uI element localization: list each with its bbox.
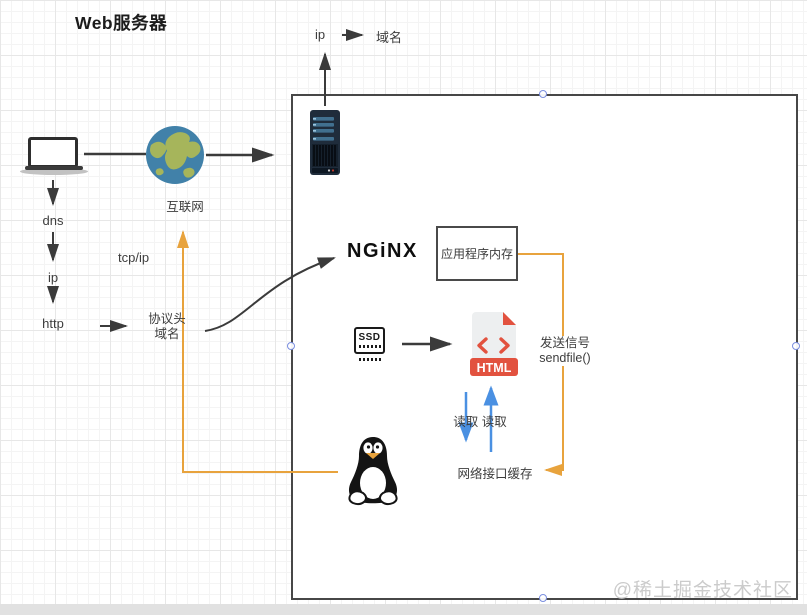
connection-handle-top[interactable] (539, 90, 547, 98)
connection-handle-left[interactable] (287, 342, 295, 350)
laptop-icon[interactable] (28, 137, 78, 168)
label-internet: 互联网 (150, 196, 220, 215)
app-memory-label: 应用程序内存 (441, 245, 513, 262)
connection-handle-bottom[interactable] (539, 594, 547, 602)
diagram-canvas: Web服务器 ip 域名 互联网 dns (0, 0, 807, 615)
ssd-icon[interactable]: SSD (354, 327, 385, 354)
label-dns: dns (33, 213, 73, 228)
laptop-hinge (25, 166, 83, 170)
label-ip-top: ip (315, 27, 325, 42)
page-title: Web服务器 (75, 10, 167, 35)
label-domain-top: 域名 (376, 27, 402, 46)
label-read: 读取 读取 (440, 411, 520, 430)
ssd-dots (359, 345, 381, 348)
watermark: @稀土掘金技术社区 (613, 575, 793, 602)
connection-handle-right[interactable] (792, 342, 800, 350)
bottom-edge-strip (0, 604, 807, 615)
tux-linux-icon[interactable] (343, 436, 403, 508)
label-tcpip: tcp/ip (118, 250, 149, 265)
label-ip: ip (33, 270, 73, 285)
label-protocol-header: 协议头域名 (136, 312, 198, 341)
nginx-logo[interactable]: NGiNX (347, 240, 418, 263)
server-icon[interactable] (310, 110, 340, 175)
html-banner-label: HTML (477, 361, 512, 375)
ssd-pins (359, 358, 383, 361)
label-send-signal: 发送信号sendfile() (523, 336, 607, 366)
app-memory-box[interactable]: 应用程序内存 (436, 226, 518, 281)
label-http: http (33, 316, 73, 331)
globe-icon[interactable] (145, 125, 205, 185)
ssd-label: SSD (358, 333, 380, 343)
label-nic-cache: 网络接口缓存 (453, 463, 537, 482)
html-file-icon[interactable]: HTML (470, 312, 520, 378)
